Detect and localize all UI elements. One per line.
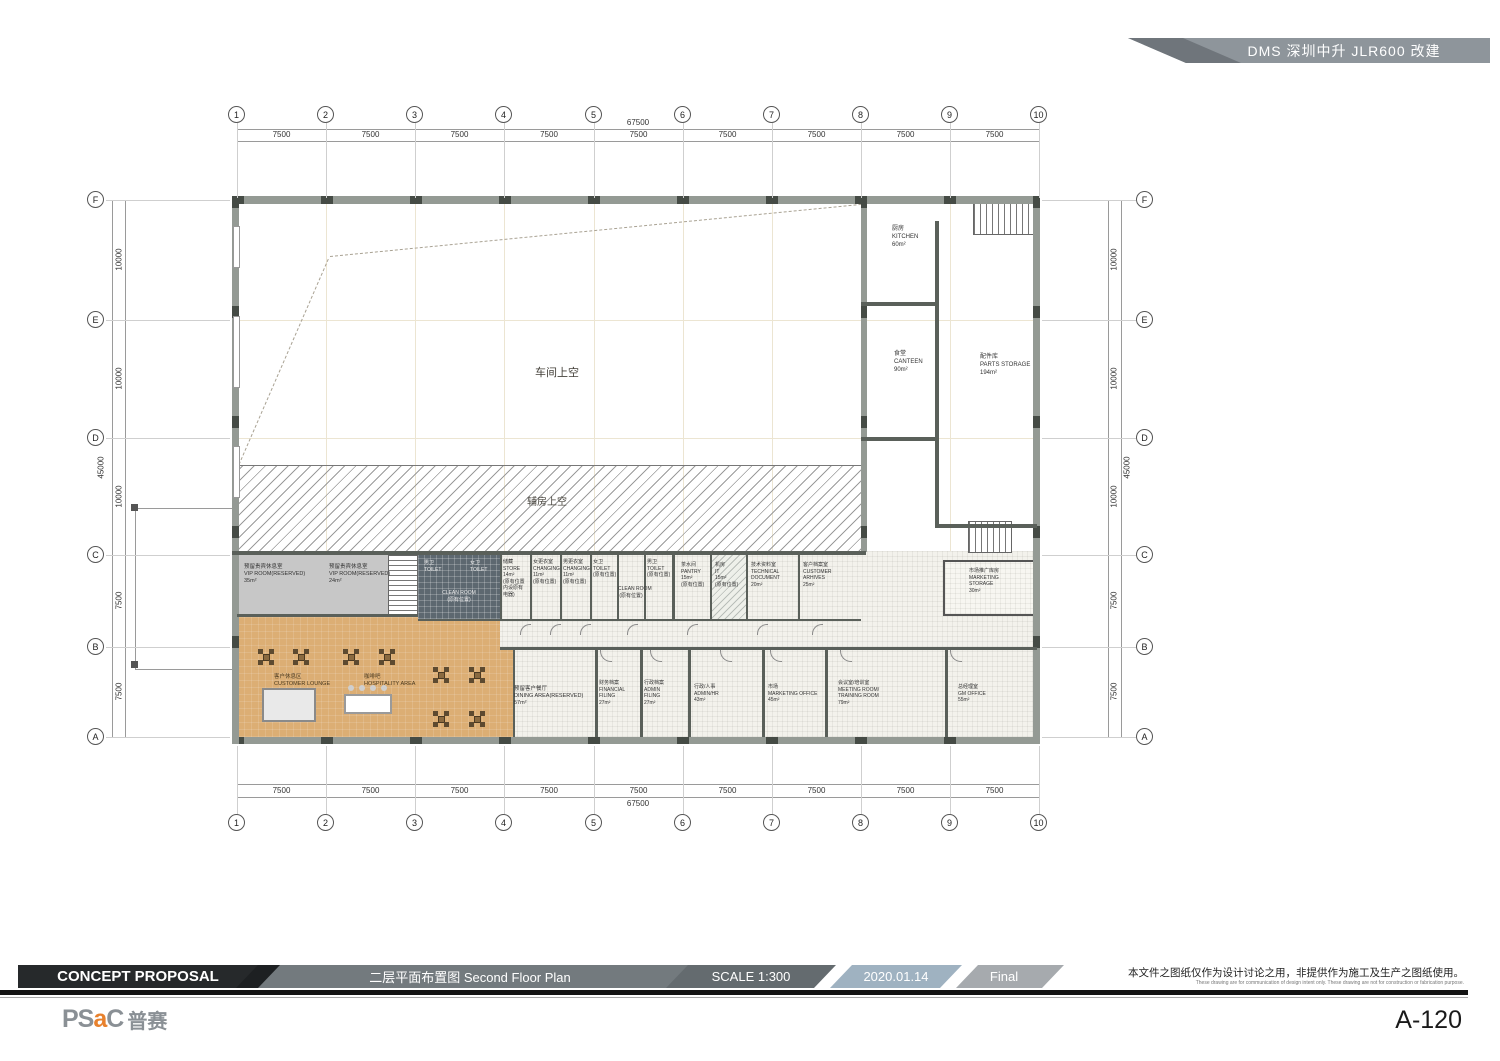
grid-bubble-row-A-left: A	[87, 728, 104, 745]
dim-total-right: 45000	[1123, 448, 1132, 488]
partition	[945, 650, 948, 737]
table-cluster	[432, 666, 450, 684]
dining-tan-strip	[500, 650, 513, 737]
wall-south	[232, 737, 1040, 744]
room-label-changing_f: 女更衣室CHANGING11m²(原有位置)	[533, 559, 560, 585]
dim-label-right: 10000	[1110, 240, 1119, 280]
dim-label-bottom: 7500	[262, 786, 302, 795]
logo-letter-c: C	[106, 1005, 123, 1034]
wall-parts-south	[935, 524, 1037, 528]
grid-leader	[950, 746, 951, 814]
grid-leader	[683, 123, 684, 198]
coffee-bar	[344, 694, 392, 714]
room-label-admin_hr: 行政/人事ADMIN/HR43m²	[694, 684, 749, 704]
dim-label-bottom: 7500	[529, 786, 569, 795]
grid-leader	[106, 555, 230, 556]
table-cluster	[432, 710, 450, 728]
room-label-admin_filing: 行政档案ADMINFILING27m²	[644, 680, 684, 706]
grid-leader	[326, 746, 327, 814]
disclaimer-en: These drawing are for communication of d…	[1060, 980, 1464, 986]
reception-desk	[262, 688, 316, 722]
dim-label-left: 10000	[115, 476, 124, 516]
grid-bubble-col-8-bottom: 8	[852, 814, 869, 831]
room-label-fin: 财务档案FINANCIALFILING27m²	[599, 680, 639, 706]
table-cluster	[468, 710, 486, 728]
grid-leader	[683, 746, 684, 814]
room-label-toilet_m2: 男卫TOILET(原有位置)	[647, 559, 671, 579]
scale-label: SCALE 1:300	[712, 969, 791, 984]
wall-row-c-south	[418, 619, 861, 621]
grid-bubble-row-E-right: E	[1136, 311, 1153, 328]
dim-line-right-inner	[1108, 200, 1109, 737]
dim-label-top: 7500	[708, 130, 748, 139]
wall-kitchen-canteen	[861, 302, 939, 306]
date-label: 2020.01.14	[863, 969, 928, 984]
partition	[500, 555, 502, 619]
room-label-it: 机房IT15m²(原有位置)	[715, 562, 743, 588]
grid-bubble-col-9-top: 9	[941, 106, 958, 123]
dim-line-top-inner	[237, 141, 1039, 142]
grid-leader	[237, 123, 238, 198]
dim-total-bottom: 67500	[618, 799, 658, 808]
room-label-mkt_storage: 市场推广库房MARKETINGSTORAGE30m²	[969, 568, 1027, 594]
dim-label-top: 7500	[975, 130, 1015, 139]
canopy-outline	[135, 508, 238, 670]
dim-label-top: 7500	[619, 130, 659, 139]
status-label: Final	[990, 969, 1018, 984]
drawing-sheet: DMS 深圳中升 JLR600 改建	[0, 0, 1500, 1061]
grid-bubble-col-7-top: 7	[763, 106, 780, 123]
grid-leader	[326, 123, 327, 198]
titlebar-proposal: CONCEPT PROPOSAL	[18, 965, 278, 988]
dim-label-right: 10000	[1110, 359, 1119, 399]
logo-cn: 普赛	[127, 1005, 167, 1034]
grid-bubble-row-E-left: E	[87, 311, 104, 328]
table-cluster	[378, 648, 396, 666]
room-label-toilet_f2: 女卫TOILET(原有位置)	[593, 559, 617, 579]
grid-bubble-col-2-bottom: 2	[317, 814, 334, 831]
room-label-store: 储藏STORE14m²(原有位置内设原有电器)	[503, 559, 529, 598]
window-west	[233, 316, 240, 388]
grid-leader	[106, 647, 230, 648]
room-label-toilet_f1: 女卫TOILET	[470, 560, 500, 573]
grid-line-row	[239, 320, 1033, 321]
room-label-archives: 客户档案室CUSTOMERARHIVES25m²	[803, 562, 855, 588]
grid-bubble-row-D-right: D	[1136, 429, 1153, 446]
grid-bubble-col-4-bottom: 4	[495, 814, 512, 831]
room-label-mkt_office: 市场MARKETING OFFICE45m²	[768, 684, 824, 704]
dim-label-top: 7500	[262, 130, 302, 139]
grid-leader	[504, 746, 505, 814]
partition	[762, 650, 765, 737]
window-west	[233, 226, 240, 268]
grid-leader	[106, 200, 230, 201]
title-rule-heavy	[0, 990, 1468, 995]
canopy-column	[131, 504, 138, 511]
grid-leader	[106, 320, 230, 321]
aux-void-hatch	[232, 465, 861, 554]
dim-label-left: 7500	[115, 581, 124, 621]
grid-leader	[415, 123, 416, 198]
partition	[825, 650, 828, 737]
room-label-changing_m: 男更衣室CHANGING11m²(原有位置)	[563, 559, 590, 585]
dim-label-left: 10000	[115, 240, 124, 280]
room-label-vip1: 预留贵宾休息室VIP ROOM(RESERVED)35m²	[244, 564, 324, 585]
grid-leader	[1042, 555, 1136, 556]
grid-leader	[1042, 737, 1136, 738]
grid-bubble-col-1-bottom: 1	[228, 814, 245, 831]
grid-leader	[1039, 746, 1040, 814]
dim-label-top: 7500	[797, 130, 837, 139]
table-cluster	[468, 666, 486, 684]
grid-leader	[772, 123, 773, 198]
partition	[688, 650, 691, 737]
dim-label-top: 7500	[886, 130, 926, 139]
grid-leader	[106, 737, 230, 738]
grid-bubble-col-10-top: 10	[1030, 106, 1047, 123]
room-label-aux: 辅房上空	[467, 496, 627, 509]
dim-label-top: 7500	[351, 130, 391, 139]
dim-label-top: 7500	[440, 130, 480, 139]
grid-bubble-row-B-left: B	[87, 638, 104, 655]
grid-bubble-col-2-top: 2	[317, 106, 334, 123]
dim-label-bottom: 7500	[619, 786, 659, 795]
partition	[590, 555, 592, 619]
grid-bubble-col-6-bottom: 6	[674, 814, 691, 831]
partition	[640, 650, 643, 737]
titlebar-scale: SCALE 1:300	[666, 965, 836, 988]
dim-label-bottom: 7500	[708, 786, 748, 795]
grid-bubble-row-C-right: C	[1136, 546, 1153, 563]
table-cluster	[342, 648, 360, 666]
grid-bubble-row-F-left: F	[87, 191, 104, 208]
wall-canteen-south	[861, 437, 939, 441]
grid-bubble-row-A-right: A	[1136, 728, 1153, 745]
dim-line-bottom-inner	[237, 784, 1039, 785]
room-label-kitchen: 厨房KITCHEN60m²	[892, 226, 962, 249]
wall-north	[232, 196, 1040, 204]
wall-vip-south	[237, 614, 418, 617]
sheet-number: A-120	[1350, 1006, 1462, 1035]
grid-bubble-col-5-top: 5	[585, 106, 602, 123]
logo-letters-ps: PS	[62, 1005, 93, 1034]
grid-leader	[594, 123, 595, 198]
dim-label-bottom: 7500	[351, 786, 391, 795]
dim-label-bottom: 7500	[797, 786, 837, 795]
titlebar-status: Final	[956, 965, 1064, 988]
grid-bubble-row-C-left: C	[87, 546, 104, 563]
floor-plan: 车间上空辅房上空厨房KITCHEN60m²食堂CANTEEN90m²配件库PAR…	[232, 196, 1040, 744]
partition	[798, 555, 800, 619]
partition	[530, 555, 532, 619]
dim-line-left-outer	[112, 200, 113, 737]
project-title: DMS 深圳中升 JLR600 改建	[1247, 41, 1440, 61]
dim-total-left: 45000	[97, 448, 106, 488]
dim-label-right: 10000	[1110, 476, 1119, 516]
room-label-techdoc: 技术资料室TECHNICALDOCUMENT20m²	[751, 562, 797, 588]
dim-line-bottom-outer	[237, 797, 1039, 798]
grid-bubble-col-8-top: 8	[852, 106, 869, 123]
crane-dashed-line	[330, 204, 862, 257]
grid-bubble-col-6-top: 6	[674, 106, 691, 123]
grid-leader	[504, 123, 505, 198]
crane-dashed-line	[239, 259, 329, 465]
grid-leader	[1042, 647, 1136, 648]
grid-bubble-col-3-bottom: 3	[406, 814, 423, 831]
room-label-vip2: 预留贵宾休息室VIP ROOM(RESERVED)24m²	[329, 564, 389, 585]
company-logo: PSaC普赛	[62, 1004, 167, 1034]
dim-label-right: 7500	[1110, 672, 1119, 712]
room-label-workshop: 车间上空	[477, 366, 637, 380]
room-label-pantry: 茶水间PANTRY15m²(原有位置)	[681, 562, 711, 588]
dim-label-top: 7500	[529, 130, 569, 139]
grid-bubble-row-D-left: D	[87, 429, 104, 446]
grid-leader	[415, 746, 416, 814]
room-label-clean1: CLEAN ROOM(原有位置)	[428, 590, 490, 603]
grid-bubble-col-3-top: 3	[406, 106, 423, 123]
room-label-clean2: CLEAN ROOM(原有位置)	[618, 586, 644, 599]
table-cluster	[257, 648, 275, 666]
dim-label-bottom: 7500	[440, 786, 480, 795]
canopy-column	[131, 661, 138, 668]
grid-leader	[1042, 200, 1136, 201]
stair-top-right	[973, 203, 1037, 235]
grid-bubble-col-4-top: 4	[495, 106, 512, 123]
dim-label-right: 7500	[1110, 581, 1119, 621]
logo-letter-a: a	[93, 1005, 106, 1034]
grid-bubble-col-10-bottom: 10	[1030, 814, 1047, 831]
drawing-title: 二层平面布置图 Second Floor Plan	[369, 967, 571, 986]
partition	[560, 555, 562, 619]
window-west	[233, 446, 240, 498]
grid-leader	[1042, 438, 1136, 439]
disclaimer-cn: 本文件之图纸仅作为设计讨论之用，非提供作为施工及生产之图纸使用。	[1060, 965, 1464, 980]
wall-east	[1033, 196, 1040, 744]
room-label-dining: 预留客户餐厅DINING AREA(RESERVED)57m²	[514, 686, 602, 707]
grid-leader	[1042, 320, 1136, 321]
grid-bubble-col-7-bottom: 7	[763, 814, 780, 831]
dim-label-bottom: 7500	[886, 786, 926, 795]
titlebar-date: 2020.01.14	[830, 965, 962, 988]
grid-leader	[772, 746, 773, 814]
grid-leader	[106, 438, 230, 439]
room-label-gm: 总经理室GM OFFICE55m²	[958, 684, 1014, 704]
partition	[672, 555, 675, 619]
proposal-label: CONCEPT PROPOSAL	[57, 968, 219, 985]
grid-leader	[861, 746, 862, 814]
grid-leader	[237, 746, 238, 814]
dim-label-bottom: 7500	[975, 786, 1015, 795]
dim-line-left-inner	[125, 200, 126, 737]
grid-leader	[950, 123, 951, 198]
grid-leader	[1039, 123, 1040, 198]
title-rule-thin	[0, 997, 1468, 998]
grid-bubble-col-5-bottom: 5	[585, 814, 602, 831]
grid-leader	[861, 123, 862, 198]
dim-total-top: 67500	[618, 118, 658, 127]
dim-label-left: 7500	[115, 672, 124, 712]
partition	[746, 555, 748, 619]
wall-row-c-north	[232, 551, 866, 555]
room-label-meeting: 会议室/培训室MEETING ROOM/TRAINING ROOM79m²	[838, 680, 928, 706]
bar-stools	[348, 685, 354, 691]
dim-label-left: 10000	[115, 359, 124, 399]
room-label-toilet_m1: 男卫TOILET	[424, 560, 454, 573]
grid-bubble-col-9-bottom: 9	[941, 814, 958, 831]
table-cluster	[292, 648, 310, 666]
room-label-parts: 配件库PARTS STORAGE194m²	[980, 354, 1065, 377]
stair-main	[388, 555, 418, 617]
wall-kitchen-wing-west	[861, 196, 867, 552]
room-label-canteen: 食堂CANTEEN90m²	[894, 351, 964, 374]
grid-leader	[594, 746, 595, 814]
grid-bubble-col-1-top: 1	[228, 106, 245, 123]
grid-bubble-row-B-right: B	[1136, 638, 1153, 655]
grid-bubble-row-F-right: F	[1136, 191, 1153, 208]
